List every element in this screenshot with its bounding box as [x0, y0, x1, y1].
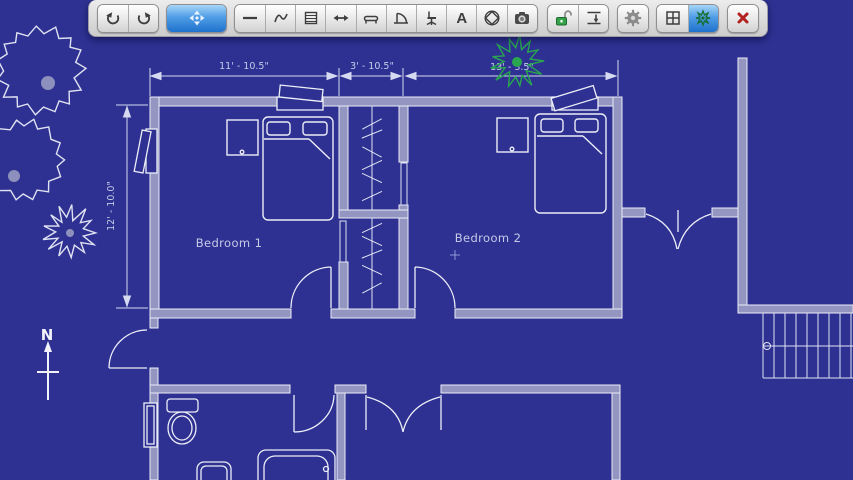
grid-toggle-button[interactable] [657, 5, 687, 32]
wall-line-tool-button[interactable] [235, 5, 265, 32]
lined-panel-icon [301, 8, 321, 28]
plant-tool-button[interactable] [688, 5, 718, 32]
door-swing-icon [391, 8, 411, 28]
move-arrows-icon [187, 8, 207, 28]
line-icon [240, 8, 260, 28]
freehand-tool-button[interactable] [265, 5, 295, 32]
bedroom2-label: Bedroom 2 [455, 231, 522, 245]
dim-top-mid: 3' - 10.5" [350, 61, 394, 72]
shape-tool-button[interactable] [476, 5, 506, 32]
camera-icon [512, 8, 532, 28]
horizontal-arrow-icon [331, 8, 351, 28]
redo-button[interactable] [128, 5, 158, 32]
letter-a-icon: A [456, 11, 467, 26]
blueprint-background [0, 0, 853, 480]
north-label: N [41, 326, 54, 344]
text-tool-button[interactable]: A [446, 5, 476, 32]
chair-tool-button[interactable] [416, 5, 446, 32]
bedroom1-label: Bedroom 1 [196, 236, 263, 250]
move-tool-group [166, 4, 226, 33]
snap-dimension-tool-button[interactable] [578, 5, 608, 32]
dimension-snap-icon [584, 8, 604, 28]
dim-left-side: 12' - 10.0" [106, 181, 117, 231]
bathroom-window-inner [147, 406, 154, 444]
undo-arrow-icon [103, 8, 123, 28]
close-group [727, 4, 759, 33]
tree-trunk-dot [8, 170, 20, 182]
unlocked-padlock-icon [553, 8, 573, 28]
tree-trunk-dot [512, 57, 522, 67]
window-sill-icon [361, 8, 381, 28]
office-chair-icon [422, 8, 442, 28]
view-tools-group [656, 4, 718, 33]
settings-group [617, 4, 649, 33]
close-button[interactable] [728, 5, 758, 32]
squiggle-icon [271, 8, 291, 28]
measure-tool-button[interactable] [325, 5, 355, 32]
floor-plan-canvas[interactable]: 11' - 10.5" 3' - 10.5" 13' - 3.5" 12' - … [0, 0, 853, 480]
move-tool-button[interactable] [167, 5, 225, 32]
camera-tool-button[interactable] [507, 5, 537, 32]
window-furniture-tool-button[interactable] [356, 5, 386, 32]
undo-button[interactable] [98, 5, 128, 32]
app-window: 11' - 10.5" 3' - 10.5" 13' - 3.5" 12' - … [0, 0, 853, 480]
lock-toggle-button[interactable] [548, 5, 578, 32]
settings-button[interactable] [618, 5, 648, 32]
grid-icon [663, 8, 683, 28]
close-x-icon [733, 8, 753, 28]
redo-arrow-icon [134, 8, 154, 28]
lined-panel-tool-button[interactable] [295, 5, 325, 32]
gear-icon [623, 8, 643, 28]
diamond-circle-icon [482, 8, 502, 28]
tree-trunk-dot [41, 76, 55, 90]
undo-redo-group [97, 4, 159, 33]
lock-snap-group [547, 4, 609, 33]
tree-trunk-dot [66, 229, 74, 237]
draw-tools-group: A [234, 4, 538, 33]
tree-icon [693, 8, 713, 28]
door-tool-button[interactable] [386, 5, 416, 32]
toolbar: A [88, 0, 768, 37]
dim-top-left: 11' - 10.5" [219, 61, 269, 72]
